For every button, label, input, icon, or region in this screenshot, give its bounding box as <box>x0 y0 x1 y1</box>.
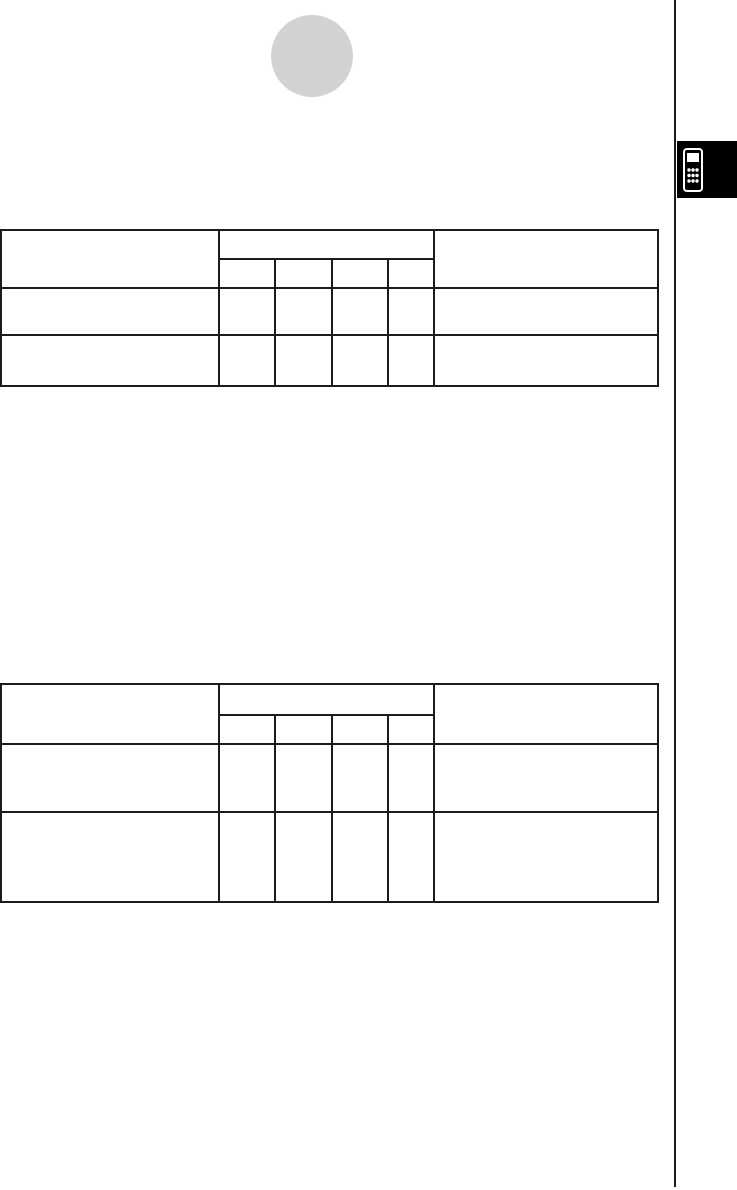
table-cell <box>275 744 332 812</box>
table-cell <box>388 288 434 335</box>
table-cell <box>219 744 275 812</box>
table-cell <box>388 744 434 812</box>
table-1-header-right-cell <box>434 230 658 288</box>
table-cell <box>275 288 332 335</box>
table-1-header-group-cell <box>219 230 434 259</box>
table-cell <box>1 288 219 335</box>
table-cell <box>434 288 658 335</box>
table-1-subheader-cell <box>332 259 388 288</box>
table-2-header-left-cell <box>1 684 219 744</box>
table-2-header-right-cell <box>434 684 658 744</box>
table-1 <box>0 229 659 387</box>
table-2-subheader-cell <box>219 715 275 744</box>
section-number-circle <box>271 15 353 97</box>
table-cell <box>1 812 219 902</box>
page-edge-rule <box>674 0 676 1187</box>
table-cell <box>275 335 332 386</box>
calculator-icon <box>683 148 703 192</box>
table-cell <box>332 288 388 335</box>
table-cell <box>219 812 275 902</box>
table-2-header-row <box>1 684 658 715</box>
table-cell <box>275 812 332 902</box>
table-cell <box>1 335 219 386</box>
table-row <box>1 812 658 902</box>
chapter-tab <box>677 141 737 198</box>
table-1-subheader-cell <box>275 259 332 288</box>
table-cell <box>434 812 658 902</box>
table-cell <box>219 335 275 386</box>
table-row <box>1 744 658 812</box>
table-cell <box>434 335 658 386</box>
document-page <box>0 0 737 1190</box>
table-row <box>1 288 658 335</box>
table-1-header-left-cell <box>1 230 219 288</box>
table-2-subheader-cell <box>388 715 434 744</box>
table-cell <box>388 335 434 386</box>
table-cell <box>1 744 219 812</box>
table-cell <box>332 744 388 812</box>
table-1-subheader-cell <box>388 259 434 288</box>
table-cell <box>332 812 388 902</box>
table-2-subheader-cell <box>275 715 332 744</box>
table-2-subheader-cell <box>332 715 388 744</box>
table-row <box>1 335 658 386</box>
table-cell <box>219 288 275 335</box>
table-2-header-group-cell <box>219 684 434 715</box>
table-1-subheader-cell <box>219 259 275 288</box>
table-cell <box>332 335 388 386</box>
table-cell <box>388 812 434 902</box>
table-1-header-row <box>1 230 658 259</box>
table-2 <box>0 683 659 903</box>
table-cell <box>434 744 658 812</box>
